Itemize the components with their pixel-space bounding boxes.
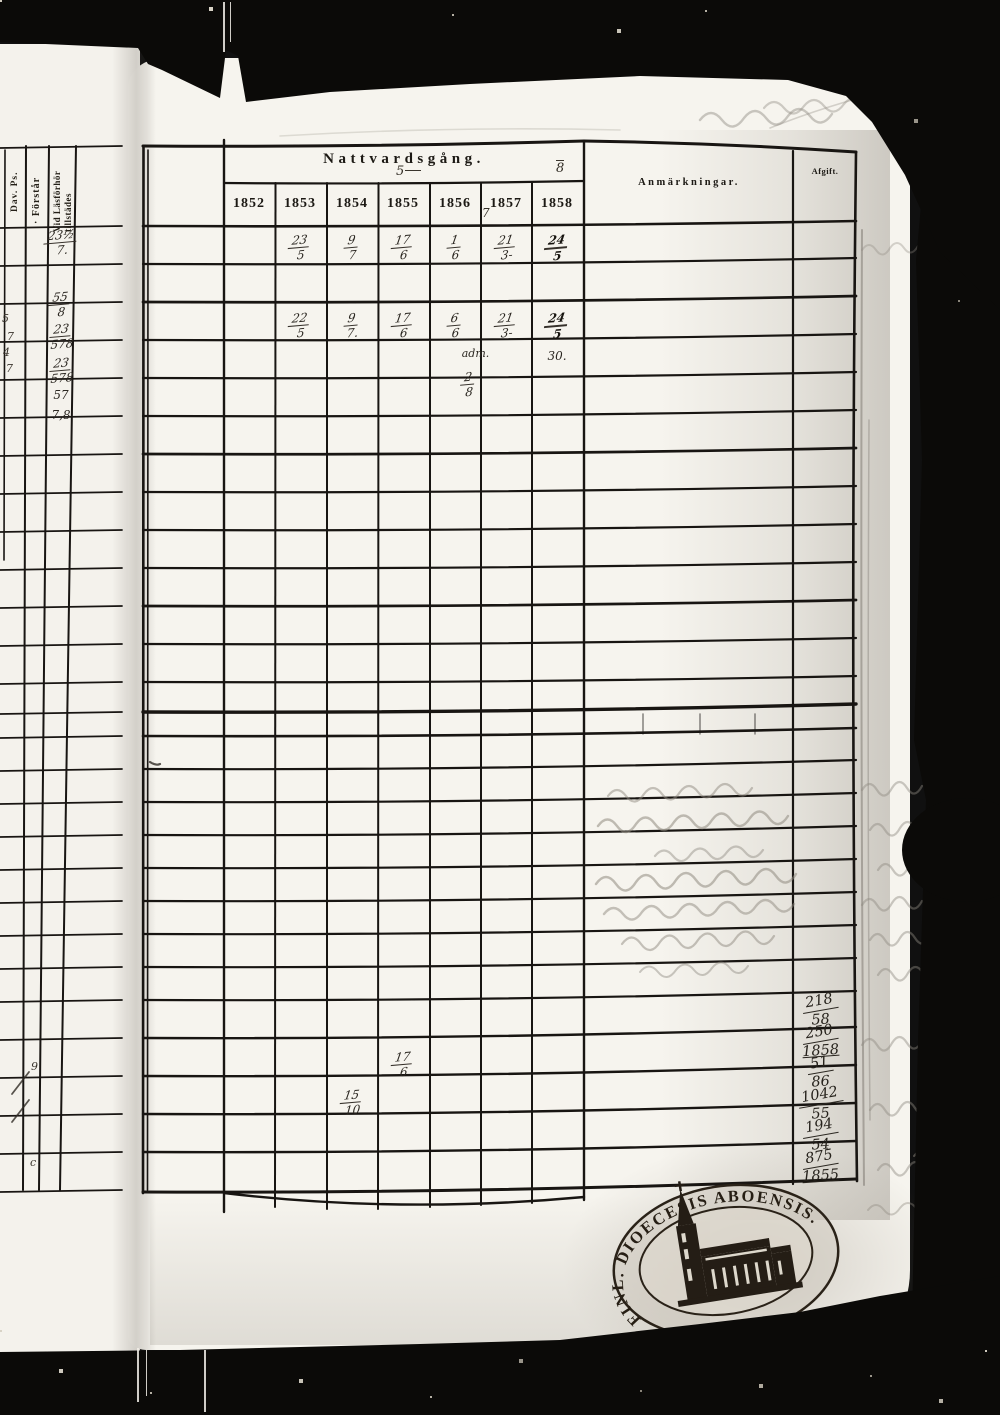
grid-line	[12, 1100, 29, 1122]
grid-line	[655, 847, 763, 862]
grid-line	[143, 859, 856, 868]
grid-line	[640, 963, 748, 978]
fee-column-header: Afgift.	[794, 166, 856, 176]
grid-line	[143, 704, 856, 712]
film-specks	[0, 1330, 2, 1332]
grid-line	[143, 562, 856, 568]
grid-line	[0, 264, 122, 266]
grid-line	[0, 606, 122, 608]
grid-line	[143, 826, 856, 835]
handwritten-annotation: 8	[556, 160, 564, 176]
film-scratch	[223, 2, 225, 52]
grid-line	[0, 769, 122, 771]
grid-line	[604, 900, 794, 920]
remarks-column-header: Anmärkningar.	[584, 177, 794, 188]
grid-line	[0, 454, 122, 456]
grid-line	[0, 1190, 122, 1192]
grid-line	[143, 448, 856, 454]
year-header-1857: 1857	[490, 196, 522, 212]
grid-line	[870, 932, 930, 946]
communion-entry: 213-	[495, 309, 516, 339]
film-specks	[0, 0, 2, 2]
grid-line	[150, 762, 160, 765]
left-page-scrap: 558	[44, 288, 78, 318]
grid-line	[23, 146, 26, 1190]
grid-line	[143, 524, 856, 530]
communion-entry: 176	[392, 309, 413, 339]
grid-line	[0, 568, 122, 570]
grid-line	[622, 932, 774, 951]
grid-line	[862, 782, 922, 796]
grid-line	[0, 802, 122, 804]
grid-line	[0, 712, 122, 714]
communion-entry: 30.	[547, 347, 566, 365]
grid-line	[0, 934, 122, 936]
grid-line	[0, 736, 122, 738]
communion-entry: 225	[289, 309, 310, 339]
grid-line	[862, 1037, 922, 1051]
year-header-1855: 1855	[387, 196, 419, 212]
film-scratch	[137, 1348, 139, 1402]
grid-line	[143, 372, 856, 378]
grid-line	[0, 868, 122, 870]
handwritten-annotation: 7	[482, 206, 490, 220]
grid-line	[0, 146, 122, 148]
grid-line	[143, 991, 856, 1000]
grid-line	[143, 1103, 856, 1114]
grid-line	[378, 183, 379, 1209]
communion-entry: 176	[392, 1048, 413, 1078]
grid-line	[143, 728, 856, 736]
margin-mark: 7	[6, 362, 13, 375]
margin-mark: 4	[3, 346, 10, 359]
grid-line	[143, 676, 856, 682]
grid-line	[0, 1038, 122, 1040]
grid-line	[143, 638, 856, 644]
communion-entry: 97.	[345, 309, 359, 339]
left-page-scrap: 23½7.	[44, 226, 78, 256]
film-scratch	[204, 1350, 206, 1412]
column-header-vid-lasforhor: Vid Läsförhör tillstädes	[52, 171, 74, 232]
grid-line	[143, 410, 856, 416]
communion-entry: 176	[392, 231, 413, 261]
grid-line	[280, 129, 620, 136]
grid-line	[143, 146, 144, 1193]
grid-line	[0, 644, 122, 646]
communion-entry: 245	[546, 231, 569, 262]
grid-line	[143, 600, 856, 606]
grid-line	[143, 892, 856, 901]
margin-mark: 7	[7, 330, 14, 343]
grid-line	[143, 958, 856, 967]
grid-line	[0, 1076, 122, 1078]
communion-entry: adm.28	[462, 347, 493, 398]
communion-entry: 1510	[341, 1086, 362, 1116]
year-header-1852: 1852	[233, 196, 265, 212]
communion-entry: 235	[289, 231, 310, 261]
grid-line	[143, 1065, 856, 1076]
grid-line	[0, 835, 122, 837]
communion-entry: 213-	[495, 231, 516, 261]
left-page-scrap: 57	[44, 386, 78, 404]
film-scratch	[230, 2, 231, 42]
grid-line	[12, 1072, 29, 1094]
grid-line	[143, 1027, 856, 1038]
communion-entry: 97	[345, 231, 359, 261]
grid-line	[275, 183, 276, 1207]
grid-line	[0, 1152, 122, 1154]
margin-mark: 5	[2, 312, 9, 325]
grid-line	[0, 530, 122, 532]
left-page-scrap: 23578	[44, 320, 78, 350]
grid-line	[0, 492, 122, 494]
left-page-scrap: 7,8	[44, 406, 78, 424]
communion-entry: 16	[448, 231, 462, 261]
grid-line	[862, 897, 922, 911]
grid-line	[143, 760, 856, 769]
scanned-church-record-page: Nattvardsgång. Anmärkningar. Afgift. 185…	[0, 0, 1000, 1415]
grid-line	[143, 141, 584, 146]
column-header-forstar: · Förstår	[31, 177, 42, 224]
year-header-1853: 1853	[284, 196, 316, 212]
handwritten-annotation: 5	[396, 164, 421, 179]
grid-line	[143, 296, 856, 302]
grid-line	[0, 967, 122, 969]
grid-line	[868, 420, 870, 1120]
grid-line	[596, 869, 796, 891]
grid-line	[143, 486, 856, 492]
grid-line	[143, 1141, 856, 1152]
margin-mark: c	[30, 1156, 36, 1169]
year-header-1854: 1854	[336, 196, 368, 212]
film-scratch	[146, 1350, 147, 1396]
grid-line	[143, 793, 856, 802]
communion-entry: 66	[448, 309, 462, 339]
year-header-1856: 1856	[439, 196, 471, 212]
grid-line	[0, 901, 122, 903]
grid-line	[0, 1000, 122, 1002]
grid-line	[0, 682, 122, 684]
year-header-1858: 1858	[541, 196, 573, 212]
communion-entry: 245	[546, 309, 569, 340]
column-header-davids-psalmer: Dav. Ps.	[10, 172, 20, 212]
grid-line	[224, 181, 584, 183]
grid-line	[224, 1193, 584, 1205]
left-page-scrap: 23578	[44, 354, 78, 384]
margin-mark: 9	[31, 1060, 38, 1073]
grid-line	[608, 784, 752, 802]
grid-line	[862, 243, 918, 255]
year-header-row: 1852185318541855185618571858	[0, 196, 1000, 222]
grid-line	[584, 141, 856, 152]
grid-line	[148, 150, 149, 1190]
